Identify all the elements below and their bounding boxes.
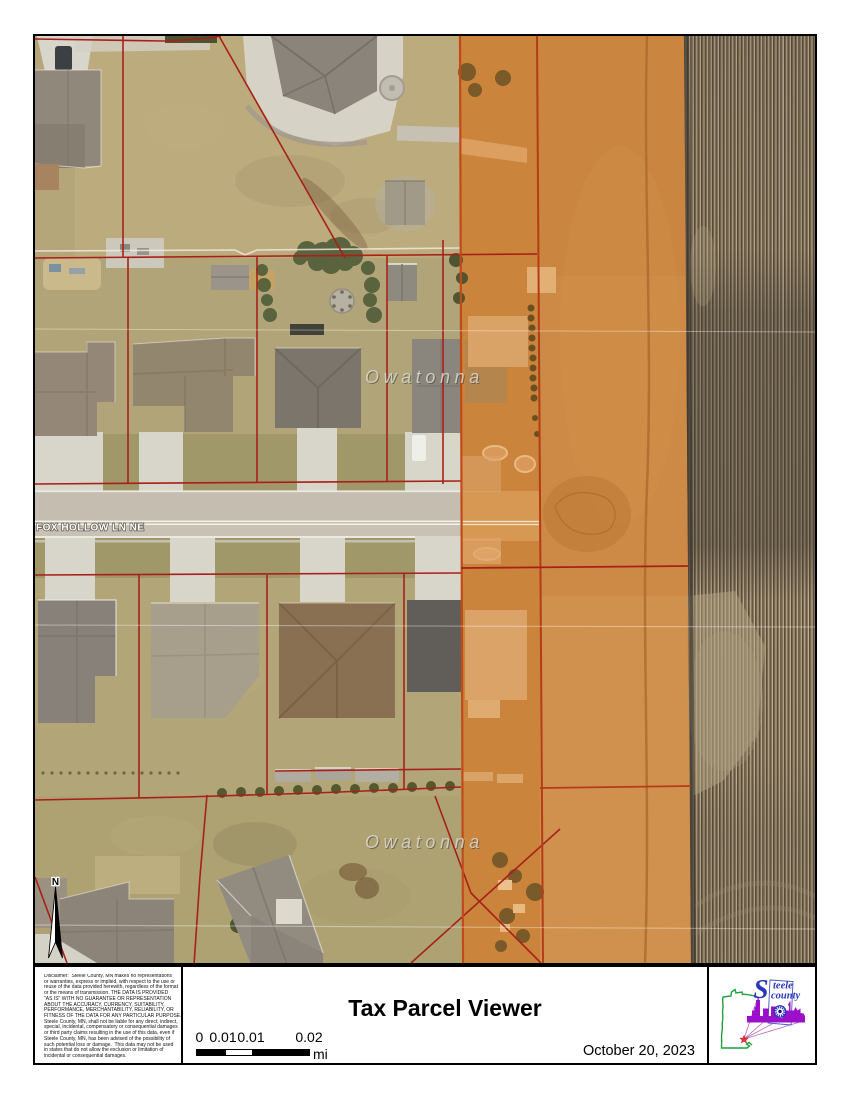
svg-text:S: S [754,974,769,1004]
svg-text:Owatonna: Owatonna [365,367,484,387]
svg-text:N: N [52,877,59,888]
svg-text:county: county [771,991,801,1002]
svg-text:FOX HOLLOW LN NE: FOX HOLLOW LN NE [36,523,145,534]
svg-text:Owatonna: Owatonna [365,832,484,852]
